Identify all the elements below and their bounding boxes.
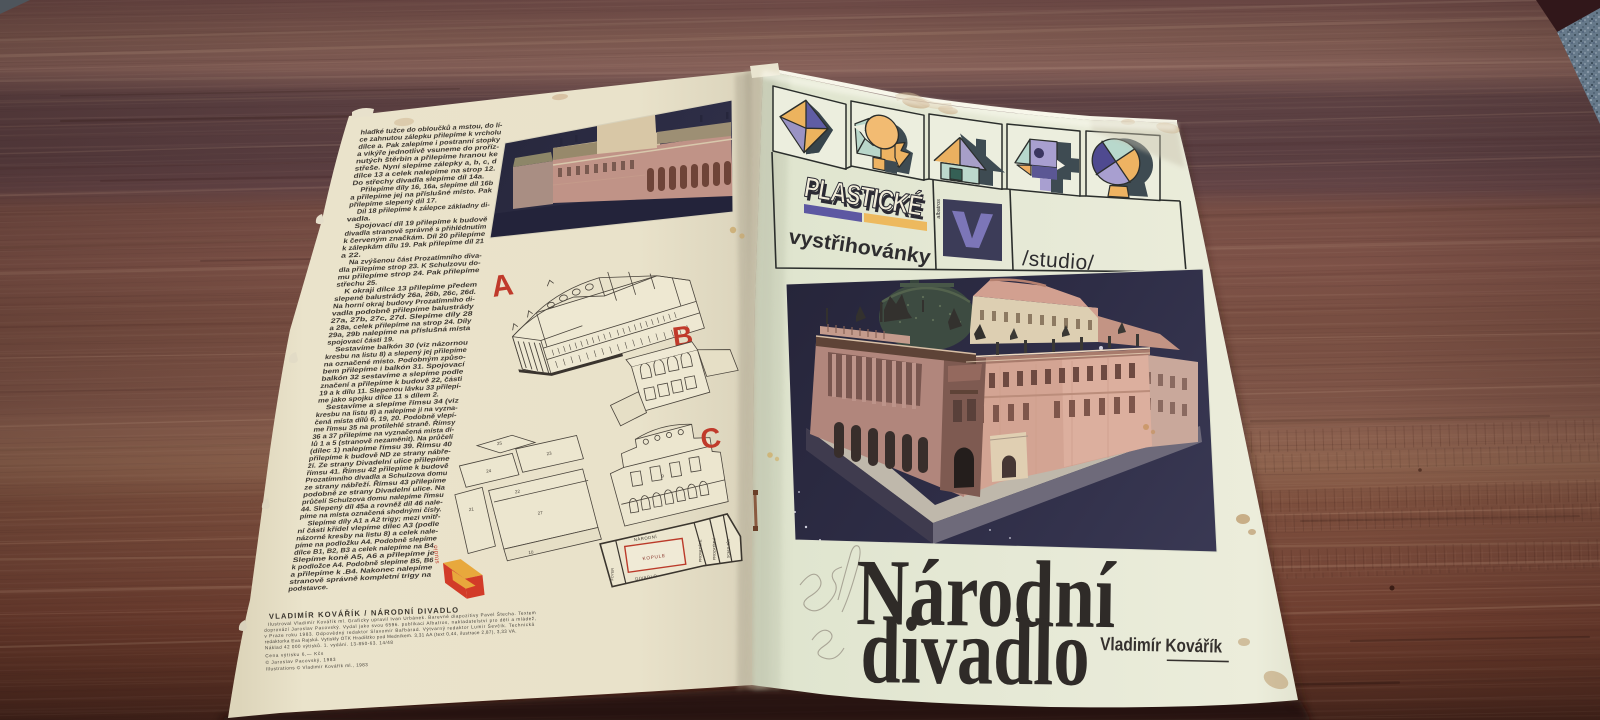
svg-text:FOYER: FOYER [610, 568, 614, 581]
svg-text:divadlo: divadlo [860, 597, 1090, 706]
svg-text:C: C [699, 421, 723, 455]
svg-text:A: A [489, 268, 515, 304]
svg-text:SCHULZŮV: SCHULZŮV [725, 538, 730, 558]
svg-text:albatros: albatros [936, 199, 942, 219]
svg-text:PROVAZIŠTĚ: PROVAZIŠTĚ [698, 539, 703, 562]
svg-text:Vladimír Kovářík: Vladimír Kovářík [1100, 633, 1223, 657]
svg-text:PROZATÍMNÍ: PROZATÍMNÍ [712, 538, 716, 560]
